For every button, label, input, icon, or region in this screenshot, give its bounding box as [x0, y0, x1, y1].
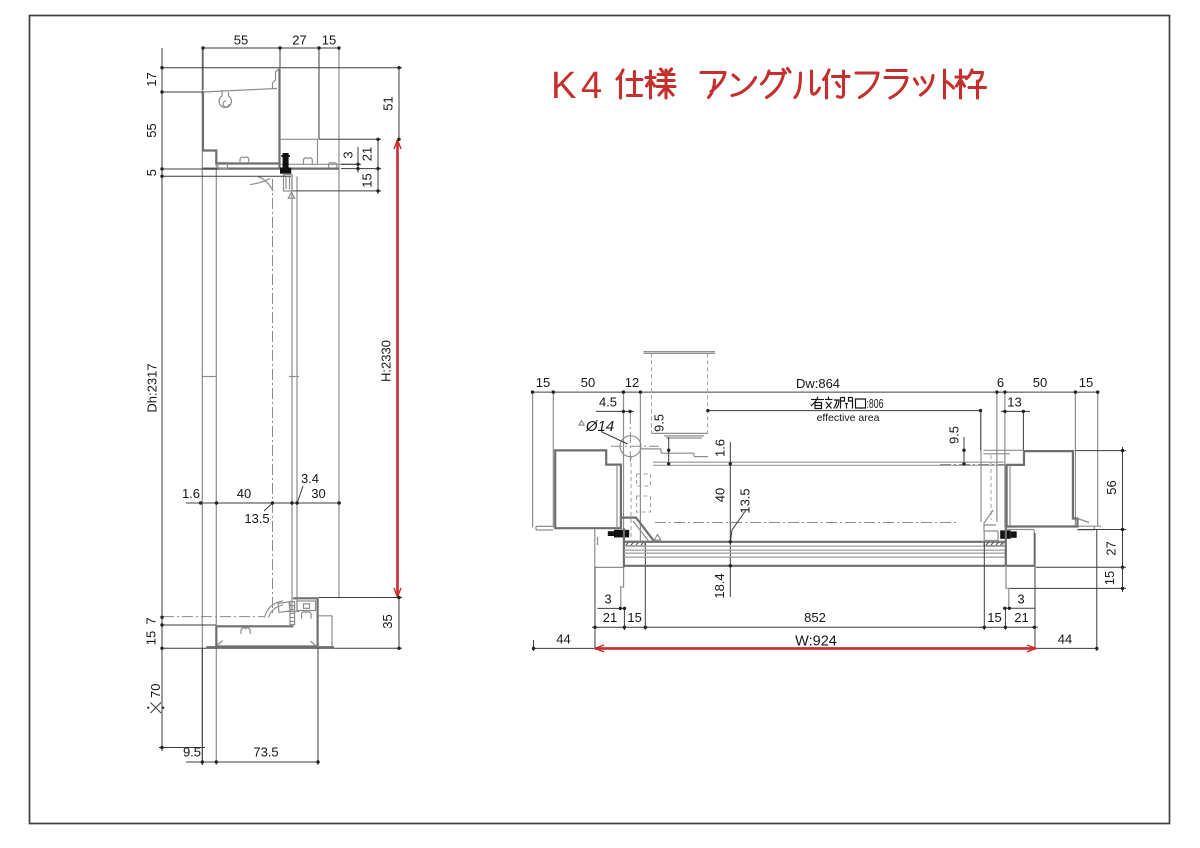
svg-text:50: 50 [1033, 375, 1047, 390]
svg-text:51: 51 [381, 96, 396, 110]
svg-text:3: 3 [341, 151, 356, 158]
svg-text:40: 40 [237, 486, 251, 501]
svg-text:21: 21 [360, 147, 375, 161]
svg-text:3: 3 [604, 592, 611, 607]
svg-text:13.5: 13.5 [738, 488, 753, 513]
svg-text:55: 55 [234, 33, 248, 48]
svg-text:70: 70 [148, 684, 163, 698]
svg-text:effective area: effective area [817, 412, 880, 424]
svg-text:W:924: W:924 [795, 634, 837, 650]
svg-text:12: 12 [625, 375, 639, 390]
svg-text:9.5: 9.5 [947, 426, 962, 444]
svg-text::806: :806 [867, 396, 884, 411]
svg-text:73.5: 73.5 [253, 745, 278, 760]
svg-text:852: 852 [804, 610, 826, 625]
svg-text:15: 15 [1102, 571, 1117, 585]
svg-text:6: 6 [997, 375, 1004, 390]
svg-text:4.5: 4.5 [599, 395, 617, 410]
svg-text:17: 17 [144, 72, 159, 86]
svg-text:30: 30 [311, 486, 325, 501]
svg-text:27: 27 [292, 33, 306, 48]
svg-text:40: 40 [713, 488, 728, 502]
svg-text:15: 15 [536, 375, 550, 390]
svg-text:21: 21 [603, 610, 617, 625]
svg-text:9.5: 9.5 [652, 414, 667, 432]
svg-text:7: 7 [144, 617, 159, 624]
svg-text:4: 4 [581, 65, 602, 107]
svg-text:Dh:2317: Dh:2317 [145, 363, 160, 412]
svg-text:1.6: 1.6 [713, 439, 728, 457]
svg-text:15: 15 [322, 33, 336, 48]
svg-text:15: 15 [144, 631, 159, 645]
svg-text:H:2330: H:2330 [379, 340, 394, 382]
svg-text:18.4: 18.4 [712, 573, 727, 598]
svg-text:3.4: 3.4 [301, 471, 319, 486]
svg-text:K: K [551, 65, 576, 107]
svg-text:56: 56 [1104, 480, 1119, 494]
svg-text:9.5: 9.5 [183, 745, 201, 760]
svg-text:55: 55 [144, 123, 159, 137]
svg-text:50: 50 [581, 375, 595, 390]
svg-text:15: 15 [627, 610, 641, 625]
svg-text:Ø14: Ø14 [585, 418, 614, 435]
svg-text:35: 35 [380, 614, 395, 628]
svg-text:13: 13 [1007, 395, 1021, 410]
svg-text:15: 15 [987, 610, 1001, 625]
svg-text:Dw:864: Dw:864 [796, 376, 840, 391]
svg-text:3: 3 [1017, 592, 1024, 607]
svg-text:21: 21 [1014, 610, 1028, 625]
svg-text:27: 27 [1104, 541, 1119, 555]
svg-text:44: 44 [1058, 632, 1072, 647]
svg-text:15: 15 [1079, 375, 1093, 390]
svg-text:15: 15 [360, 173, 375, 187]
svg-text:1.6: 1.6 [182, 486, 200, 501]
svg-text:5: 5 [144, 169, 159, 176]
svg-text:13.5: 13.5 [244, 511, 269, 526]
svg-text:44: 44 [556, 632, 570, 647]
